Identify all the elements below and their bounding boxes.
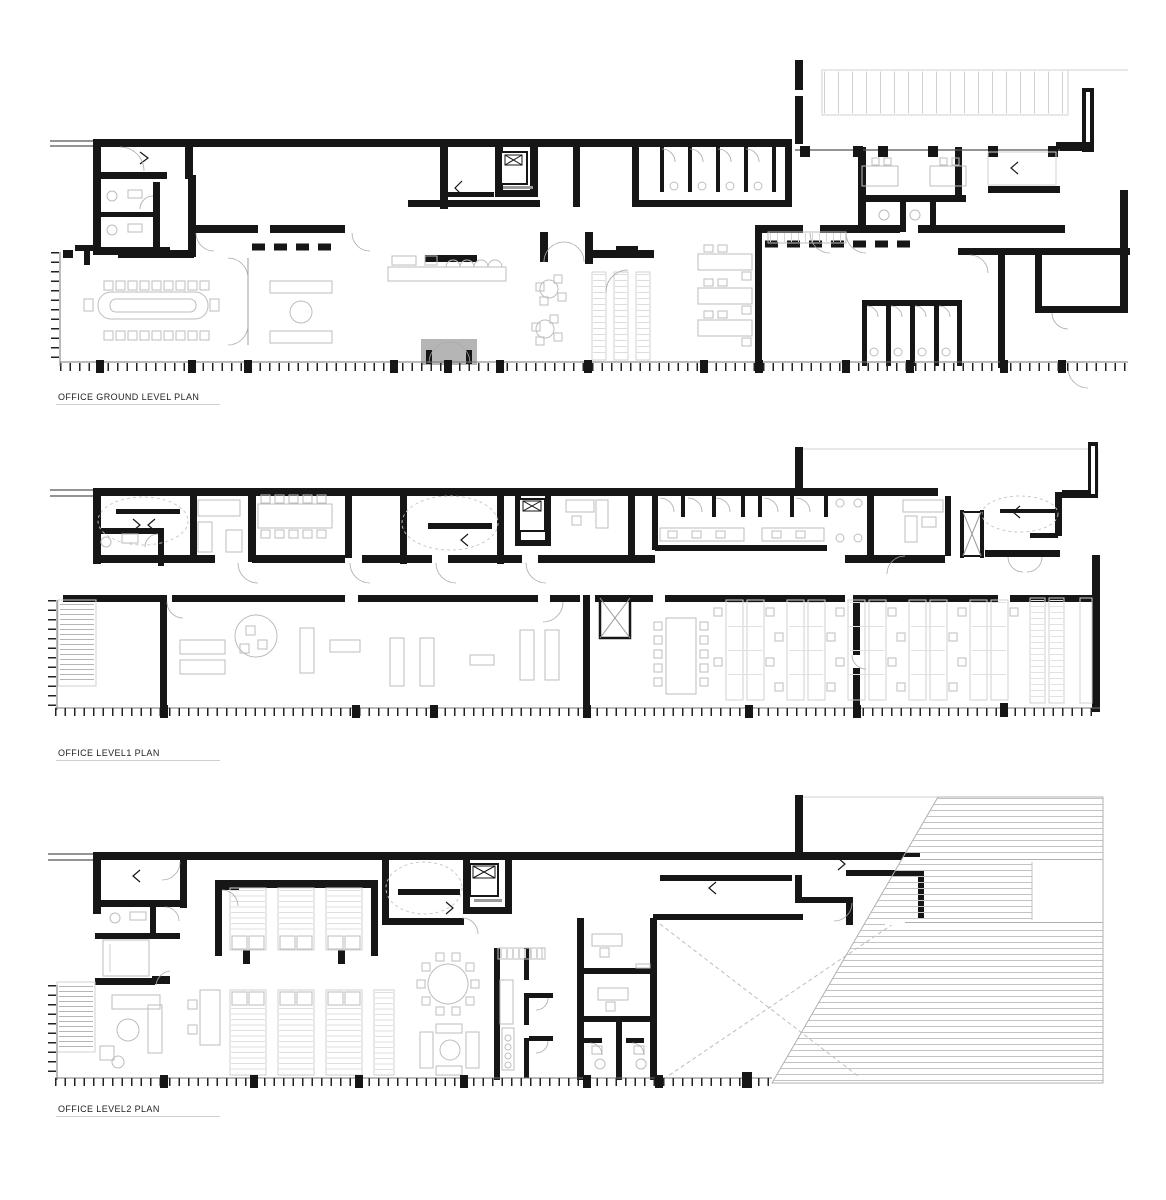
canopy-hook — [795, 60, 1094, 152]
void-x — [660, 924, 893, 1076]
desk-clusters — [714, 600, 1018, 700]
storage-racks — [1030, 598, 1092, 703]
ground-elevator — [501, 152, 533, 189]
level1-plan — [50, 442, 1100, 718]
level1-stairs — [58, 496, 1058, 686]
kitchen — [498, 948, 545, 1070]
floor-plans-sheet: OFFICE GROUND LEVEL PLAN OFFICE LEVEL1 P… — [0, 0, 1166, 1200]
level2-plan-label: OFFICE LEVEL2 PLAN — [56, 1104, 220, 1117]
level1-plan-label: OFFICE LEVEL1 PLAN — [56, 748, 220, 761]
level2-elevator — [470, 864, 502, 902]
roof-terrace — [772, 797, 1105, 1083]
ground-walls — [50, 139, 1130, 368]
ground-door-arcs — [120, 147, 1088, 388]
level2-plan — [48, 795, 1105, 1088]
ground-plan-label: OFFICE GROUND LEVEL PLAN — [56, 392, 220, 405]
level1-shaft — [963, 512, 981, 556]
shelving — [592, 272, 650, 360]
ground-level-plan — [50, 60, 1130, 388]
level1-door-arcs — [145, 498, 1042, 669]
floor-plans-drawing — [0, 0, 1166, 1200]
level1-shaft-lower — [600, 598, 630, 638]
level1-elevator — [519, 499, 545, 531]
